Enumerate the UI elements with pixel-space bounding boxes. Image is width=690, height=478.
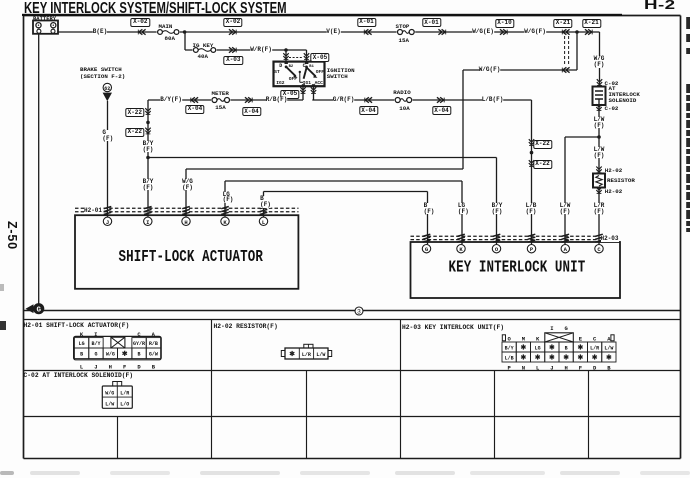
svg-text:B/Y: B/Y	[91, 341, 100, 347]
svg-text:L/B: L/B	[505, 355, 514, 361]
svg-text:G/W: G/W	[149, 352, 158, 358]
svg-text:3: 3	[357, 309, 361, 316]
svg-text:I: I	[94, 331, 97, 338]
svg-text:B/Y: B/Y	[505, 345, 514, 351]
svg-text:N: N	[522, 364, 525, 371]
svg-text:F: F	[123, 363, 126, 370]
svg-text:J: J	[550, 364, 553, 371]
svg-text:L/R: L/R	[590, 345, 599, 351]
svg-text:D: D	[137, 363, 141, 370]
svg-text:F: F	[579, 364, 582, 371]
svg-text:W/G: W/G	[106, 352, 115, 358]
svg-text:I: I	[550, 325, 553, 332]
svg-text:B: B	[138, 352, 141, 358]
svg-text:B: B	[565, 345, 568, 351]
svg-text:R/B: R/B	[149, 341, 158, 347]
svg-text:J: J	[94, 363, 97, 370]
svg-text:J: J	[106, 219, 109, 226]
svg-text:G: G	[564, 325, 568, 332]
svg-text:L/O: L/O	[120, 402, 129, 408]
svg-text:L/R: L/R	[120, 391, 129, 397]
svg-text:LG: LG	[535, 345, 541, 351]
svg-text:H: H	[109, 363, 112, 370]
svg-text:B: B	[152, 363, 156, 370]
svg-text:L/W: L/W	[105, 402, 114, 408]
svg-text:62: 62	[104, 86, 110, 92]
svg-text:G: G	[36, 306, 41, 314]
svg-text:H: H	[184, 219, 187, 226]
svg-text:L: L	[80, 363, 84, 370]
svg-text:H: H	[564, 364, 567, 371]
svg-text:G: G	[94, 352, 97, 358]
svg-text:I: I	[146, 219, 149, 226]
svg-text:B: B	[80, 352, 83, 358]
svg-text:W/G: W/G	[105, 391, 114, 397]
svg-text:L/R: L/R	[302, 352, 311, 358]
svg-text:LG: LG	[79, 341, 85, 347]
svg-text:L/W: L/W	[316, 352, 325, 358]
svg-text:L/W: L/W	[604, 345, 613, 351]
svg-text:GY/R: GY/R	[133, 341, 145, 347]
